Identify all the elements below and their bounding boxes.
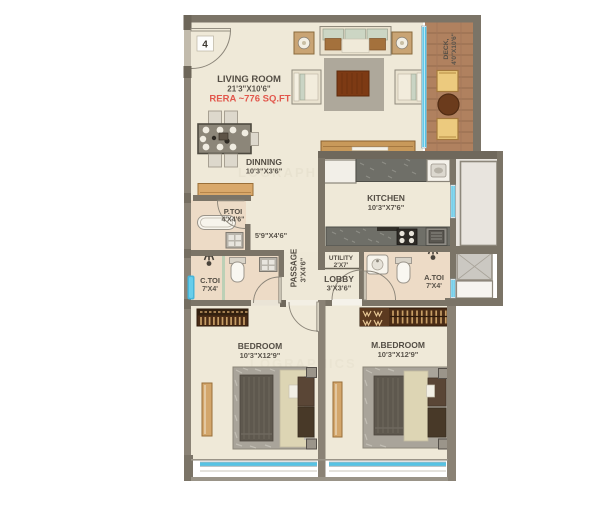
svg-text:2'X7': 2'X7' [334,262,349,269]
svg-text:M.BEDROOM: M.BEDROOM [371,340,425,350]
svg-text:UTILITY: UTILITY [329,255,354,262]
svg-text:10'3"X3'6": 10'3"X3'6" [246,167,283,176]
svg-text:DINNING: DINNING [246,157,282,167]
svg-text:DECK,: DECK, [443,38,450,59]
svg-text:4'0"X10'6": 4'0"X10'6" [451,33,458,65]
svg-text:A.TOI: A.TOI [424,273,444,282]
svg-text:4'X4'6": 4'X4'6" [222,217,245,224]
svg-text:LIVING ROOM: LIVING ROOM [217,74,281,85]
svg-text:3'X3'6": 3'X3'6" [327,284,352,293]
svg-text:P.TOI: P.TOI [224,207,242,216]
svg-text:10'3"X12'9": 10'3"X12'9" [378,350,419,359]
svg-text:KITCHEN: KITCHEN [367,193,405,203]
svg-text:7'X4': 7'X4' [426,283,442,290]
svg-text:10'3"X7'6": 10'3"X7'6" [368,203,405,212]
svg-text:C.TOI: C.TOI [200,276,220,285]
svg-text:21'3"X10'6": 21'3"X10'6" [227,85,271,94]
svg-text:3'X4'6": 3'X4'6" [299,257,308,282]
svg-text:4: 4 [202,40,208,51]
svg-text:LOBBY: LOBBY [324,274,354,284]
svg-text:BEDROOM: BEDROOM [238,341,282,351]
svg-text:7'X4': 7'X4' [202,286,218,293]
svg-text:RERA ~776 SQ.FT: RERA ~776 SQ.FT [209,94,290,105]
svg-text:5'9"X4'6": 5'9"X4'6" [255,231,288,240]
svg-text:PASSAGE: PASSAGE [290,248,299,287]
svg-text:10'3"X12'9": 10'3"X12'9" [240,351,281,360]
